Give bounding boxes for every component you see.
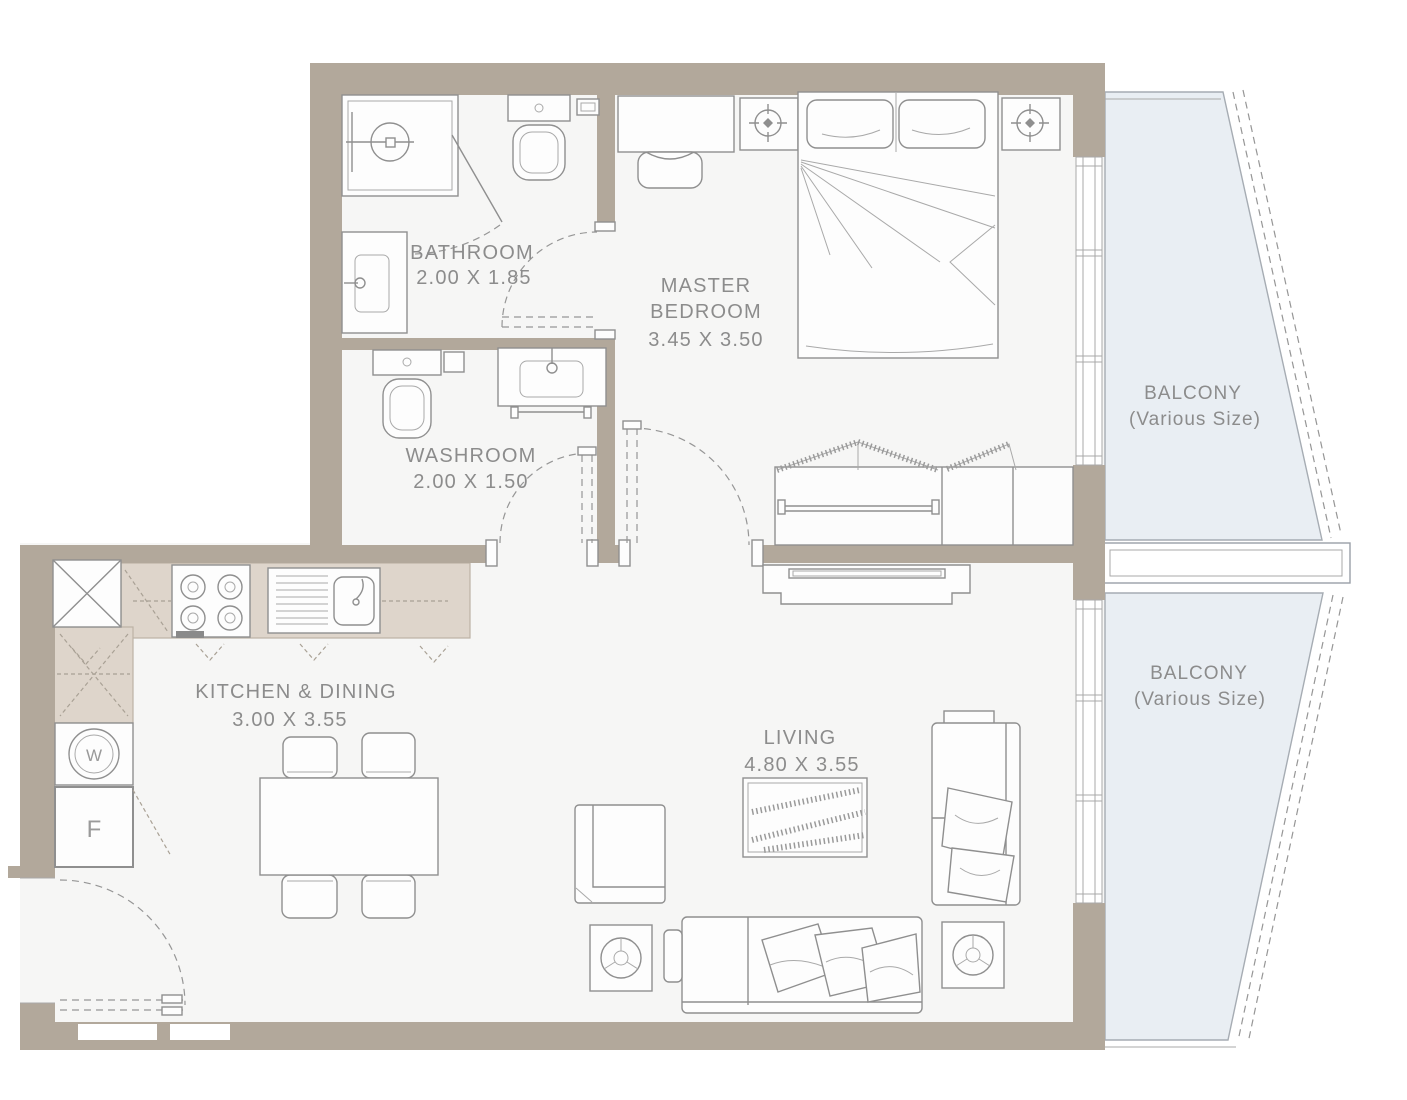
living-dims: 4.80 X 3.55	[744, 754, 860, 776]
master-bedroom-label-line1: MASTER	[661, 275, 752, 297]
washer-label: W	[86, 746, 102, 765]
armchair	[575, 805, 665, 903]
service-shaft	[53, 560, 121, 627]
dining-table	[260, 778, 438, 875]
balcony-divider-planter	[1102, 543, 1350, 583]
kitchen-dining-dims: 3.00 X 3.55	[232, 709, 348, 731]
master-bedroom-dims: 3.45 X 3.50	[648, 329, 764, 351]
rug	[743, 778, 867, 857]
sofa-bottom	[664, 917, 922, 1013]
washroom-dims: 2.00 X 1.50	[413, 471, 529, 493]
balcony-bottom-label: BALCONY	[1150, 663, 1248, 684]
living-label: LIVING	[764, 727, 837, 749]
balcony-top	[1105, 90, 1341, 540]
pillow	[948, 848, 1014, 902]
balcony-top-note: (Various Size)	[1129, 409, 1261, 430]
bathroom-label: BATHROOM	[410, 242, 534, 264]
bed	[798, 92, 998, 358]
side-table-lamp	[942, 922, 1004, 988]
bottom-wall-niches	[78, 1024, 230, 1040]
kitchen-dining-label: KITCHEN & DINING	[195, 681, 396, 703]
balcony-top-label: BALCONY	[1144, 383, 1242, 404]
stove	[172, 565, 250, 638]
washing-machine: W	[55, 723, 133, 785]
balcony-bottom-note: (Various Size)	[1134, 689, 1266, 710]
kitchen-sink	[268, 568, 380, 633]
floor-plan: W F	[0, 0, 1407, 1100]
washroom-label: WASHROOM	[405, 445, 536, 467]
sofa-right	[932, 711, 1020, 905]
balcony-bottom	[1105, 593, 1343, 1047]
fridge-label: F	[87, 816, 102, 843]
living-window	[1076, 600, 1102, 903]
bathroom-vanity	[342, 232, 407, 333]
side-table-lamp	[590, 925, 652, 991]
bedroom-window	[1076, 157, 1102, 465]
master-bedroom-label-line2: BEDROOM	[650, 301, 762, 323]
bathroom-dims: 2.00 X 1.85	[416, 267, 532, 289]
tv-console	[763, 565, 970, 604]
